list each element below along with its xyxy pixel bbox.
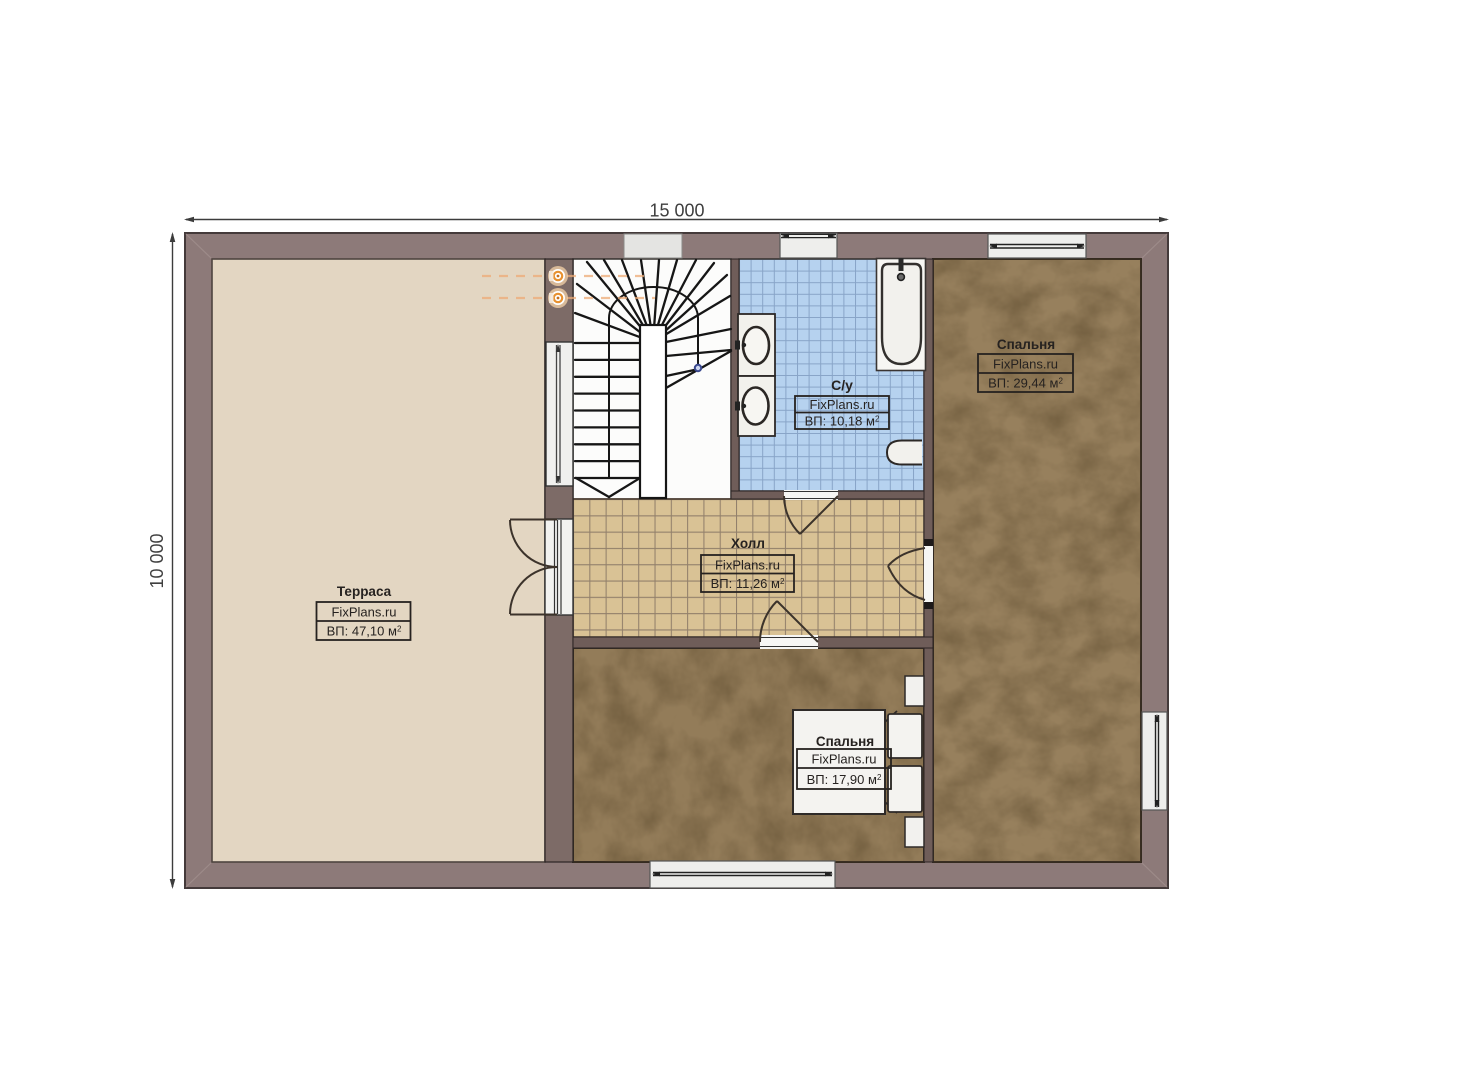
svg-text:Терраса: Терраса — [337, 584, 392, 599]
svg-text:Спальня: Спальня — [997, 337, 1055, 352]
svg-text:Спальня: Спальня — [816, 734, 874, 749]
svg-text:10 000: 10 000 — [147, 533, 167, 588]
svg-text:ВП: 11,26 м2: ВП: 11,26 м2 — [711, 576, 785, 591]
svg-text:С/у: С/у — [831, 377, 853, 393]
svg-text:15 000: 15 000 — [649, 201, 704, 221]
svg-text:ВП: 29,44 м2: ВП: 29,44 м2 — [988, 376, 1063, 391]
svg-text:FixPlans.ru: FixPlans.ru — [715, 558, 780, 573]
svg-text:ВП: 47,10 м2: ВП: 47,10 м2 — [327, 624, 402, 639]
svg-text:FixPlans.ru: FixPlans.ru — [809, 397, 874, 412]
svg-text:FixPlans.ru: FixPlans.ru — [811, 752, 876, 767]
svg-text:FixPlans.ru: FixPlans.ru — [331, 605, 396, 620]
svg-text:ВП: 10,18 м2: ВП: 10,18 м2 — [805, 414, 880, 429]
svg-text:ВП: 17,90 м2: ВП: 17,90 м2 — [807, 772, 882, 787]
svg-text:Холл: Холл — [731, 536, 765, 551]
svg-text:FixPlans.ru: FixPlans.ru — [993, 357, 1058, 372]
